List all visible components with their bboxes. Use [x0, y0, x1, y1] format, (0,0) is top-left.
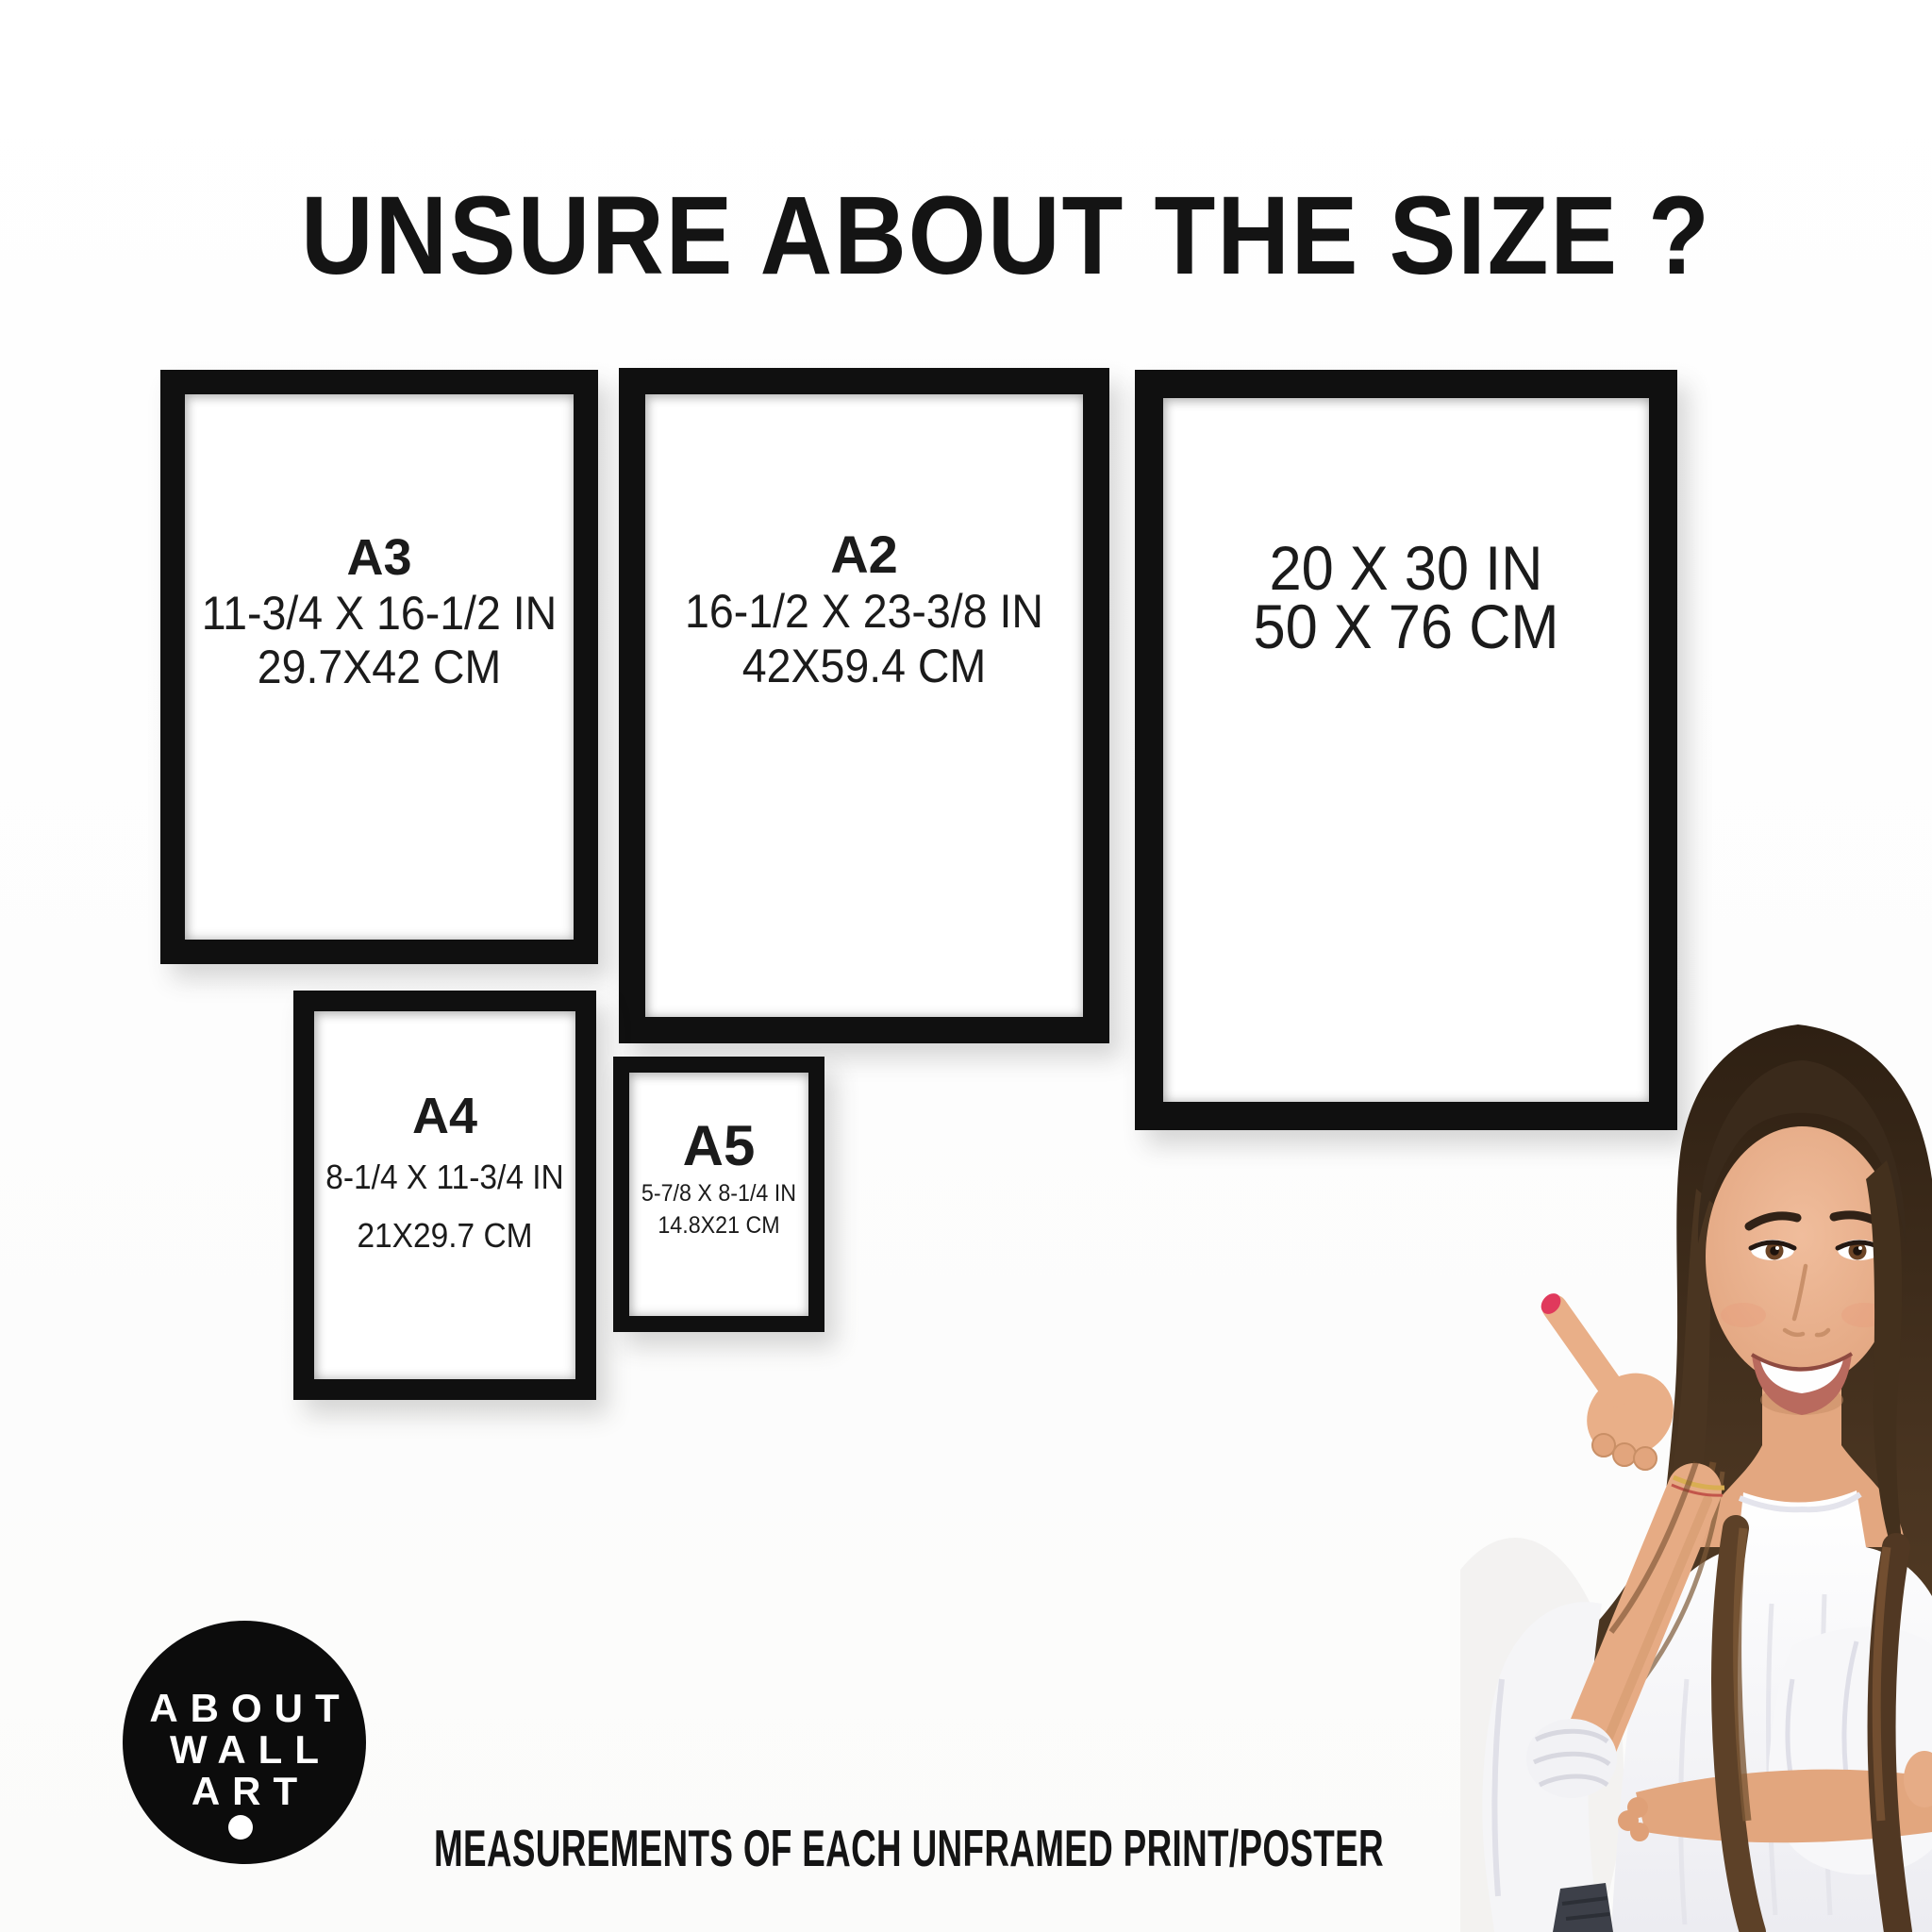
- size-inches: 16-1/2 X 23-3/8 IN: [636, 584, 1092, 639]
- frame-a3-label: A3 11-3/4 X 16-1/2 IN 29.7X42 CM: [160, 528, 598, 694]
- logo-line: ART: [135, 1771, 366, 1812]
- frame-20x30: 20 X 30 IN 50 X 76 CM: [1135, 370, 1677, 1130]
- frame-a5: A5 5-7/8 X 8-1/4 IN 14.8X21 CM: [613, 1057, 824, 1332]
- frame-a4: A4 8-1/4 X 11-3/4 IN 21X29.7 CM: [293, 991, 596, 1400]
- page-title: UNSURE ABOUT THE SIZE ?: [79, 180, 1932, 291]
- size-cm: 14.8X21 CM: [621, 1209, 817, 1241]
- logo-wordmark: ABOUT WALL ART: [123, 1688, 366, 1812]
- left-eye: [1751, 1240, 1794, 1260]
- frame-a5-label: A5 5-7/8 X 8-1/4 IN 14.8X21 CM: [613, 1115, 824, 1241]
- size-inches: 8-1/4 X 11-3/4 IN: [304, 1148, 586, 1207]
- frame-a4-label: A4 8-1/4 X 11-3/4 IN 21X29.7 CM: [293, 1084, 596, 1265]
- jeans: [1553, 1883, 1613, 1932]
- size-cm: 42X59.4 CM: [636, 639, 1092, 693]
- woman-photo: [1460, 1019, 1932, 1932]
- frame-20x30-mat: [1163, 398, 1649, 1102]
- size-cm: 21X29.7 CM: [304, 1207, 586, 1265]
- size-inches: 11-3/4 X 16-1/2 IN: [175, 587, 583, 641]
- size-inches: 5-7/8 X 8-1/4 IN: [621, 1177, 817, 1209]
- size-cm: 50 X 76 CM: [1154, 597, 1658, 656]
- frame-a3: A3 11-3/4 X 16-1/2 IN 29.7X42 CM: [160, 370, 598, 964]
- size-cm: 29.7X42 CM: [175, 641, 583, 694]
- size-inches: 20 X 30 IN: [1154, 539, 1658, 597]
- size-guide-poster: UNSURE ABOUT THE SIZE ? A3 11-3/4 X 16-1…: [0, 0, 1932, 1932]
- size-name: A3: [160, 528, 598, 587]
- size-name: A2: [619, 525, 1109, 584]
- frame-a2: A2 16-1/2 X 23-3/8 IN 42X59.4 CM: [619, 368, 1109, 1043]
- frame-a2-label: A2 16-1/2 X 23-3/8 IN 42X59.4 CM: [619, 525, 1109, 693]
- logo-line: WALL: [135, 1729, 366, 1771]
- footer-caption: MEASUREMENTS OF EACH UNFRAMED PRINT/POST…: [434, 1818, 1384, 1878]
- page-title-text: UNSURE ABOUT THE SIZE ?: [301, 180, 1711, 291]
- frame-a2-mat: [645, 394, 1083, 1017]
- size-name: A5: [613, 1115, 824, 1177]
- frame-20x30-label: 20 X 30 IN 50 X 76 CM: [1135, 539, 1677, 656]
- about-wall-art-logo: ABOUT WALL ART: [123, 1621, 366, 1864]
- logo-dot-icon: [228, 1815, 253, 1840]
- logo-line: ABOUT: [135, 1688, 366, 1729]
- size-name: A4: [293, 1084, 596, 1148]
